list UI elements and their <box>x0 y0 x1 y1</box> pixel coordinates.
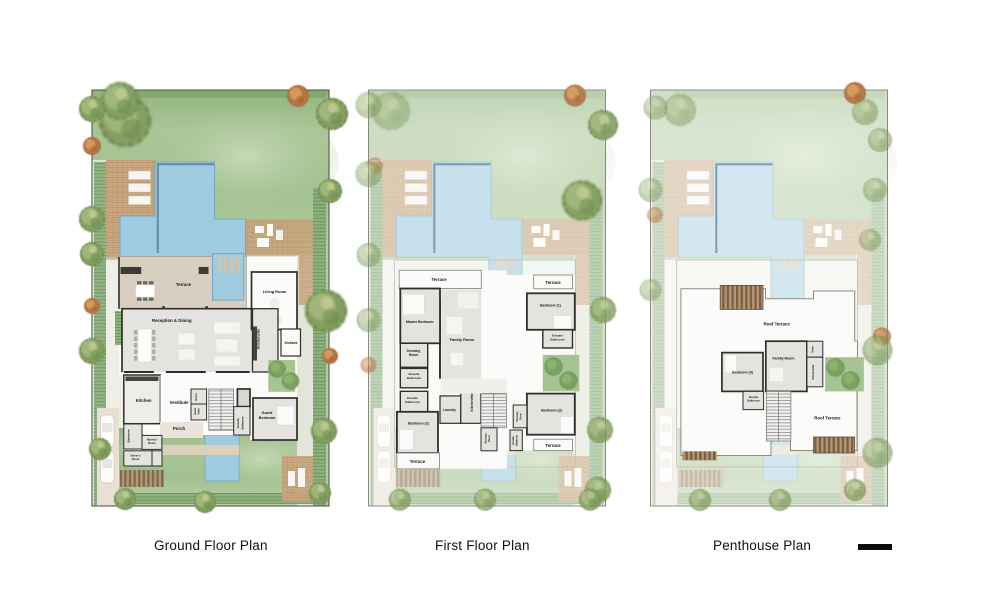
svg-text:Bedroom (2): Bedroom (2) <box>408 422 429 426</box>
svg-text:Bedroom (4): Bedroom (4) <box>732 371 753 375</box>
svg-text:Bathroom: Bathroom <box>241 416 245 429</box>
svg-text:Room: Room <box>521 413 523 420</box>
svg-text:Roof Terrace: Roof Terrace <box>764 322 791 327</box>
svg-text:Roof Terrace: Roof Terrace <box>814 416 841 421</box>
svg-text:Room: Room <box>132 457 140 461</box>
svg-text:Kitchen: Kitchen <box>136 398 152 403</box>
svg-text:Room: Room <box>409 353 418 357</box>
svg-text:Bathroom: Bathroom <box>127 429 131 442</box>
svg-text:Living Room: Living Room <box>263 289 287 294</box>
svg-text:Terrace: Terrace <box>410 459 426 464</box>
svg-text:Family Room: Family Room <box>773 357 795 361</box>
svg-text:Terrace: Terrace <box>431 277 447 282</box>
svg-text:Porch: Porch <box>173 426 186 431</box>
svg-text:Driver's: Driver's <box>131 454 141 458</box>
svg-text:Kitchenette: Kitchenette <box>470 393 474 411</box>
svg-text:Vestibule: Vestibule <box>170 400 189 405</box>
svg-text:Room: Room <box>148 441 156 445</box>
svg-text:Terrace: Terrace <box>545 443 561 448</box>
svg-text:Guest: Guest <box>262 411 273 415</box>
svg-text:Bathroom: Bathroom <box>550 338 564 342</box>
svg-text:Terrace: Terrace <box>176 282 192 287</box>
svg-text:Room: Room <box>489 435 491 442</box>
svg-text:Dressing: Dressing <box>486 433 488 443</box>
svg-text:Vestiaire: Vestiaire <box>284 341 298 345</box>
svg-text:Bedroom (1): Bedroom (1) <box>540 304 561 308</box>
svg-text:Kitchenette: Kitchenette <box>257 329 261 350</box>
svg-text:Family Room: Family Room <box>450 337 475 342</box>
svg-text:Reception & Dining: Reception & Dining <box>152 318 192 323</box>
svg-text:Ensuite: Ensuite <box>236 418 240 428</box>
svg-text:Toilet: Toilet <box>811 346 815 353</box>
svg-text:Toilet: Toilet <box>198 408 201 414</box>
svg-text:Ensuite: Ensuite <box>749 395 759 399</box>
svg-text:Bedroom: Bedroom <box>259 416 276 420</box>
svg-text:Bathroom: Bathroom <box>407 376 421 380</box>
svg-text:Laundry: Laundry <box>443 408 456 412</box>
svg-text:Master Bedroom: Master Bedroom <box>406 320 434 324</box>
svg-text:Bathroom: Bathroom <box>516 435 519 446</box>
svg-text:Dressing: Dressing <box>517 411 519 421</box>
svg-text:Bathroom: Bathroom <box>747 399 760 403</box>
svg-text:Room: Room <box>195 393 198 401</box>
svg-text:Bedroom (3): Bedroom (3) <box>541 409 562 413</box>
svg-text:Bathroom: Bathroom <box>405 400 419 404</box>
svg-text:Ensuite: Ensuite <box>512 435 515 444</box>
svg-text:Nanny's: Nanny's <box>147 438 158 442</box>
svg-text:Kitchenette: Kitchenette <box>811 364 815 379</box>
svg-text:Terrace: Terrace <box>545 280 561 285</box>
